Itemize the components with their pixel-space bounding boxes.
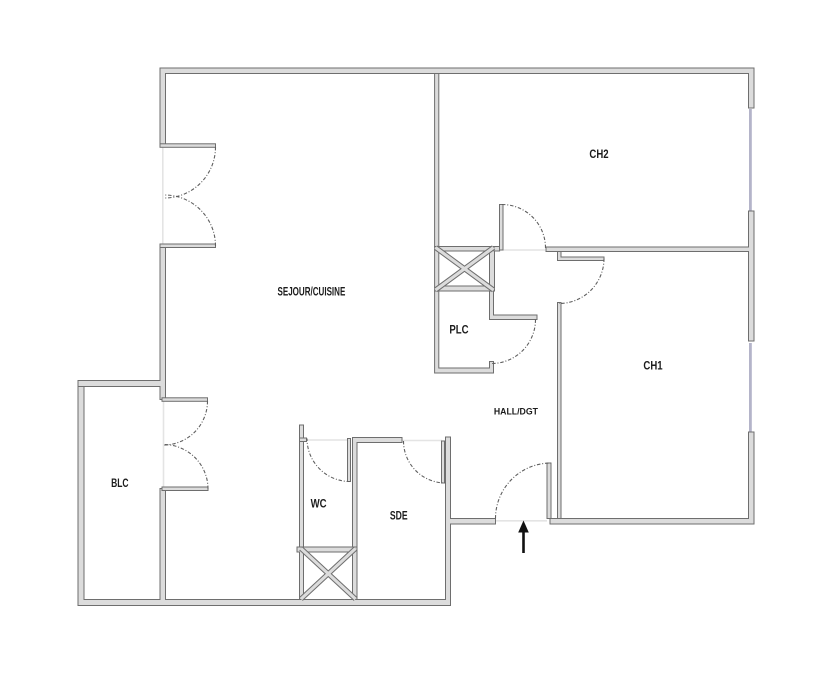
svg-text:CH1: CH1	[643, 359, 662, 372]
svg-text:BLC: BLC	[111, 478, 129, 491]
svg-text:SEJOUR/CUISINE: SEJOUR/CUISINE	[277, 286, 345, 299]
svg-text:PLC: PLC	[449, 323, 468, 336]
svg-text:WC: WC	[311, 497, 327, 510]
svg-text:SDE: SDE	[390, 510, 408, 523]
svg-text:CH2: CH2	[589, 148, 608, 161]
svg-text:HALL/DGT: HALL/DGT	[494, 406, 539, 416]
